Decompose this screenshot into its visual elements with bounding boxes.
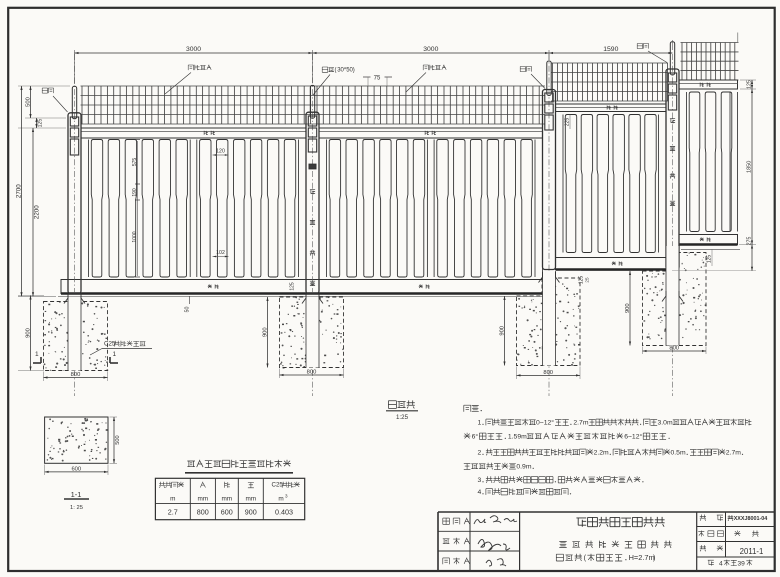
svg-text:50: 50 (184, 307, 190, 313)
svg-text:mm: mm (197, 496, 208, 503)
svg-text:3000: 3000 (186, 46, 201, 53)
svg-text:800: 800 (71, 372, 81, 378)
svg-text:900: 900 (25, 328, 31, 338)
svg-text:500: 500 (115, 435, 121, 444)
svg-text:2011-1: 2011-1 (740, 547, 764, 556)
svg-text:2.7: 2.7 (168, 508, 178, 517)
svg-text:500: 500 (25, 97, 31, 107)
svg-text:3: 3 (478, 477, 482, 484)
svg-text:6°: 6° (472, 432, 479, 440)
svg-text:1: 1 (35, 351, 39, 358)
svg-text:0~12°: 0~12° (536, 418, 554, 426)
svg-text:900: 900 (262, 327, 268, 337)
svg-text:4: 4 (478, 489, 482, 496)
svg-text:75: 75 (374, 76, 381, 82)
svg-text:225: 225 (564, 118, 570, 127)
svg-text:mm: mm (245, 496, 256, 503)
svg-text:3: 3 (285, 494, 288, 499)
svg-text:m: m (170, 496, 175, 503)
svg-text:3.0m: 3.0m (658, 419, 673, 426)
svg-text:30*50: 30*50 (337, 67, 353, 73)
svg-text:0.403: 0.403 (275, 508, 293, 517)
svg-text:): ) (653, 553, 655, 562)
svg-text:1000: 1000 (132, 231, 138, 242)
svg-text:600: 600 (71, 466, 81, 472)
svg-text:575: 575 (132, 158, 138, 167)
svg-text:2200: 2200 (33, 205, 40, 219)
svg-text:H=2.7m: H=2.7m (629, 553, 655, 562)
svg-text:1590: 1590 (603, 46, 618, 53)
svg-text:0.5m: 0.5m (671, 449, 686, 456)
svg-text:120: 120 (216, 149, 225, 155)
svg-text:125: 125 (747, 80, 753, 89)
svg-text:1:25: 1:25 (396, 414, 409, 421)
svg-text:125: 125 (38, 119, 44, 128)
svg-text:102: 102 (216, 250, 225, 256)
svg-text:1.59m: 1.59m (508, 433, 527, 440)
svg-text:125: 125 (290, 282, 296, 291)
svg-text:3000: 3000 (423, 46, 438, 53)
svg-text:125: 125 (578, 276, 584, 285)
svg-text:m: m (278, 496, 283, 503)
svg-text:800: 800 (307, 370, 317, 376)
svg-text:XXXJ8001-04: XXXJ8001-04 (734, 516, 768, 522)
svg-text:(: ( (335, 67, 337, 73)
svg-text:800: 800 (669, 346, 679, 352)
svg-text:): ) (353, 67, 355, 73)
svg-text:2.7m: 2.7m (573, 419, 588, 426)
svg-text:2.7m: 2.7m (726, 449, 741, 456)
svg-text:6~12°: 6~12° (624, 432, 642, 440)
svg-text:0.9m: 0.9m (516, 463, 531, 470)
svg-text:mm: mm (221, 496, 232, 503)
svg-text:1-1: 1-1 (71, 490, 82, 499)
svg-text:2: 2 (478, 449, 482, 456)
svg-text:39: 39 (738, 561, 746, 568)
svg-text:4: 4 (719, 561, 723, 568)
svg-text:275: 275 (746, 237, 752, 246)
svg-text:900: 900 (499, 326, 505, 336)
svg-text:1850: 1850 (747, 161, 753, 173)
svg-text:900: 900 (625, 303, 631, 313)
svg-text:1: 25: 1: 25 (70, 505, 83, 511)
svg-text:800: 800 (543, 370, 553, 376)
svg-text:2700: 2700 (15, 184, 22, 198)
svg-text:C25: C25 (272, 482, 284, 489)
svg-text:600: 600 (221, 508, 233, 517)
svg-text:125: 125 (706, 255, 712, 264)
svg-text:1: 1 (113, 351, 117, 358)
svg-text:1: 1 (478, 419, 482, 426)
svg-text:2.2m: 2.2m (594, 449, 609, 456)
svg-text:190: 190 (132, 188, 138, 197)
svg-text:25: 25 (585, 277, 590, 283)
svg-text:800: 800 (197, 508, 209, 517)
svg-text:900: 900 (245, 508, 257, 517)
